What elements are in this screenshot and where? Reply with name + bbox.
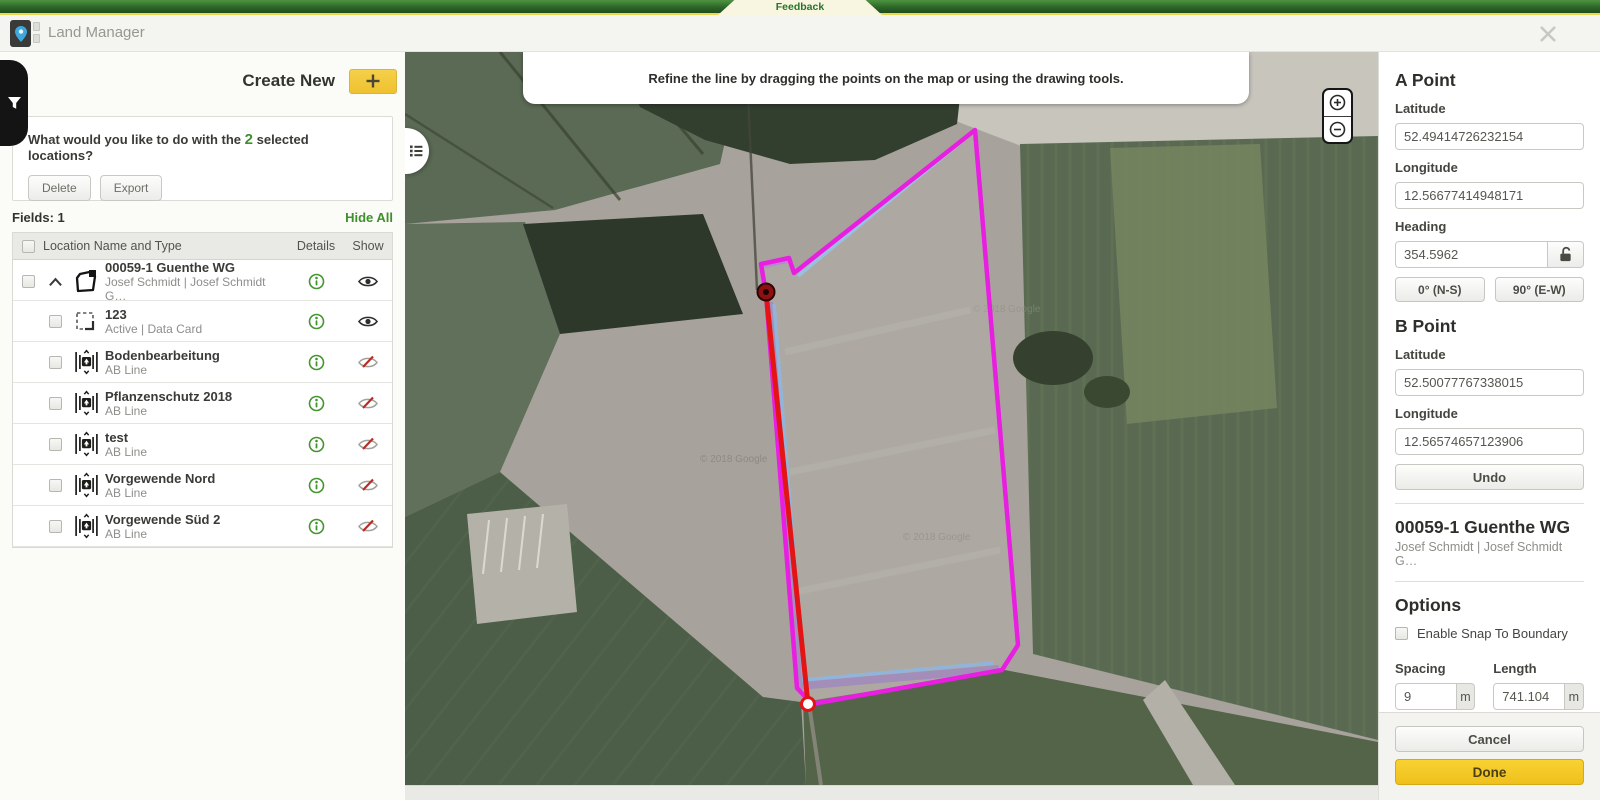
export-button[interactable]: Export	[100, 175, 163, 201]
snap-to-boundary-label: Enable Snap To Boundary	[1417, 626, 1568, 641]
table-row: Vorgewende Süd 2 AB Line	[13, 506, 392, 547]
table-row: 00059-1 Guenthe WG Josef Schmidt | Josef…	[13, 260, 392, 301]
chevron-up-icon[interactable]	[48, 277, 63, 287]
length-label: Length	[1493, 661, 1584, 676]
location-name[interactable]: 123	[105, 307, 288, 322]
land-manager-app-icon	[10, 20, 31, 47]
info-icon[interactable]	[308, 313, 325, 330]
a-point-title: A Point	[1395, 70, 1584, 91]
field-boundary-icon	[73, 269, 99, 295]
info-icon[interactable]	[308, 518, 325, 535]
row-checkbox[interactable]	[49, 397, 62, 410]
heading-ew-button[interactable]: 90° (E-W)	[1495, 277, 1585, 302]
eye-hidden-icon[interactable]	[358, 478, 378, 492]
table-row: 123 Active | Data Card	[13, 301, 392, 342]
lock-open-icon	[1558, 246, 1573, 263]
location-subtitle: AB Line	[105, 404, 288, 418]
info-icon[interactable]	[308, 273, 325, 290]
selection-prompt: What would you like to do with the 2 sel…	[28, 131, 377, 163]
page-title: Land Manager	[48, 24, 145, 41]
row-checkbox[interactable]	[49, 438, 62, 451]
cancel-button[interactable]: Cancel	[1395, 726, 1584, 752]
b-latitude-input[interactable]	[1395, 369, 1584, 396]
eye-hidden-icon[interactable]	[358, 437, 378, 451]
hide-all-link[interactable]: Hide All	[345, 210, 393, 225]
b-point-title: B Point	[1395, 316, 1584, 337]
plus-icon	[365, 73, 381, 89]
ab-line-icon	[74, 513, 99, 539]
location-subtitle: AB Line	[105, 486, 288, 500]
spacing-unit: m	[1457, 683, 1476, 710]
create-new-label: Create New	[242, 71, 335, 91]
info-icon[interactable]	[308, 354, 325, 371]
location-subtitle: AB Line	[105, 445, 288, 459]
list-icon	[409, 144, 423, 158]
delete-button[interactable]: Delete	[28, 175, 91, 201]
b-longitude-input[interactable]	[1395, 428, 1584, 455]
snap-to-boundary-checkbox[interactable]	[1395, 627, 1408, 640]
table-row: Bodenbearbeitung AB Line	[13, 342, 392, 383]
location-subtitle: AB Line	[105, 363, 288, 377]
satellite-imagery: © 2018 Google © 2018 Google © 2018 Googl…	[405, 52, 1378, 785]
table-row: test AB Line	[13, 424, 392, 465]
location-subtitle: AB Line	[105, 527, 288, 541]
ab-line-icon	[74, 390, 99, 416]
table-header-row: Location Name and Type Details Show	[13, 233, 392, 260]
row-checkbox[interactable]	[49, 356, 62, 369]
column-header-name: Location Name and Type	[43, 239, 288, 253]
funnel-icon	[7, 96, 22, 110]
map-instruction-banner: Refine the line by dragging the points o…	[523, 52, 1249, 104]
info-icon[interactable]	[308, 395, 325, 412]
location-name[interactable]: Vorgewende Süd 2	[105, 512, 288, 527]
location-name[interactable]: Bodenbearbeitung	[105, 348, 288, 363]
zoom-in-button[interactable]	[1324, 90, 1351, 117]
eye-visible-icon[interactable]	[358, 315, 378, 328]
row-checkbox[interactable]	[22, 275, 35, 288]
info-icon[interactable]	[308, 436, 325, 453]
ab-line-icon	[74, 472, 99, 498]
length-unit: m	[1565, 683, 1584, 710]
eye-visible-icon[interactable]	[358, 275, 378, 288]
map-pin-icon	[14, 25, 28, 43]
undo-button[interactable]: Undo	[1395, 464, 1584, 490]
feedback-tab[interactable]: Feedback	[718, 0, 882, 15]
point-b-handle[interactable]	[802, 698, 815, 711]
a-latitude-label: Latitude	[1395, 101, 1584, 116]
spacing-label: Spacing	[1395, 661, 1475, 676]
row-checkbox[interactable]	[49, 479, 62, 492]
info-icon[interactable]	[308, 477, 325, 494]
eye-hidden-icon[interactable]	[358, 396, 378, 410]
map-attribution-bar	[405, 785, 1378, 800]
a-latitude-input[interactable]	[1395, 123, 1584, 150]
zoom-out-icon	[1329, 121, 1346, 138]
app-header: Land Manager	[0, 15, 1600, 52]
selection-prompt-pre: What would you like to do with the	[28, 132, 245, 147]
table-row: Pflanzenschutz 2018 AB Line	[13, 383, 392, 424]
ab-line-editor-panel: A Point Latitude Longitude Heading 0° (N…	[1378, 52, 1600, 800]
point-a-handle-center	[763, 289, 769, 295]
map-watermark: © 2018 Google	[700, 454, 768, 465]
a-longitude-label: Longitude	[1395, 160, 1584, 175]
column-header-details: Details	[288, 239, 344, 253]
filter-tab[interactable]	[0, 60, 28, 146]
heading-lock-button[interactable]	[1548, 241, 1584, 268]
column-header-show: Show	[344, 239, 392, 253]
selection-actions-card: What would you like to do with the 2 sel…	[12, 116, 393, 201]
location-name[interactable]: 00059-1 Guenthe WG	[105, 260, 288, 275]
heading-input[interactable]	[1395, 241, 1548, 268]
location-subtitle: Active | Data Card	[105, 322, 288, 336]
row-checkbox[interactable]	[49, 315, 62, 328]
location-name[interactable]: Vorgewende Nord	[105, 471, 288, 486]
map-canvas[interactable]: © 2018 Google © 2018 Google © 2018 Googl…	[405, 52, 1378, 800]
selection-count: 2	[245, 131, 253, 148]
app-icon-tabs	[33, 22, 40, 45]
table-row: Vorgewende Nord AB Line	[13, 465, 392, 506]
select-all-checkbox[interactable]	[22, 240, 35, 253]
location-subtitle: Josef Schmidt | Josef Schmidt G…	[105, 275, 288, 303]
b-latitude-label: Latitude	[1395, 347, 1584, 362]
locations-table: Location Name and Type Details Show 0005…	[12, 232, 393, 548]
field-name: 00059-1 Guenthe WG	[1395, 517, 1584, 538]
close-icon[interactable]	[1538, 24, 1558, 44]
ab-line-icon	[74, 349, 99, 375]
options-title: Options	[1395, 595, 1584, 616]
zoom-in-icon	[1329, 94, 1346, 111]
zoom-out-button[interactable]	[1324, 117, 1351, 143]
b-longitude-label: Longitude	[1395, 406, 1584, 421]
eye-hidden-icon[interactable]	[358, 519, 378, 533]
a-longitude-input[interactable]	[1395, 182, 1584, 209]
boundary-dashed-icon	[73, 308, 99, 334]
length-input[interactable]	[1493, 683, 1564, 710]
heading-label: Heading	[1395, 219, 1584, 234]
locations-panel: Create New What would you like to do wit…	[0, 52, 405, 800]
eye-hidden-icon[interactable]	[358, 355, 378, 369]
fields-count-label: Fields: 1	[12, 210, 65, 225]
field-owner: Josef Schmidt | Josef Schmidt G…	[1395, 540, 1584, 568]
create-new-button[interactable]	[349, 69, 397, 94]
spacing-input[interactable]	[1395, 683, 1457, 710]
location-name[interactable]: test	[105, 430, 288, 445]
done-button[interactable]: Done	[1395, 759, 1584, 785]
row-checkbox[interactable]	[49, 520, 62, 533]
heading-ns-button[interactable]: 0° (N-S)	[1395, 277, 1485, 302]
map-zoom-control	[1322, 88, 1353, 144]
location-name[interactable]: Pflanzenschutz 2018	[105, 389, 288, 404]
ab-line-icon	[74, 431, 99, 457]
editor-footer: Cancel Done	[1379, 712, 1600, 800]
